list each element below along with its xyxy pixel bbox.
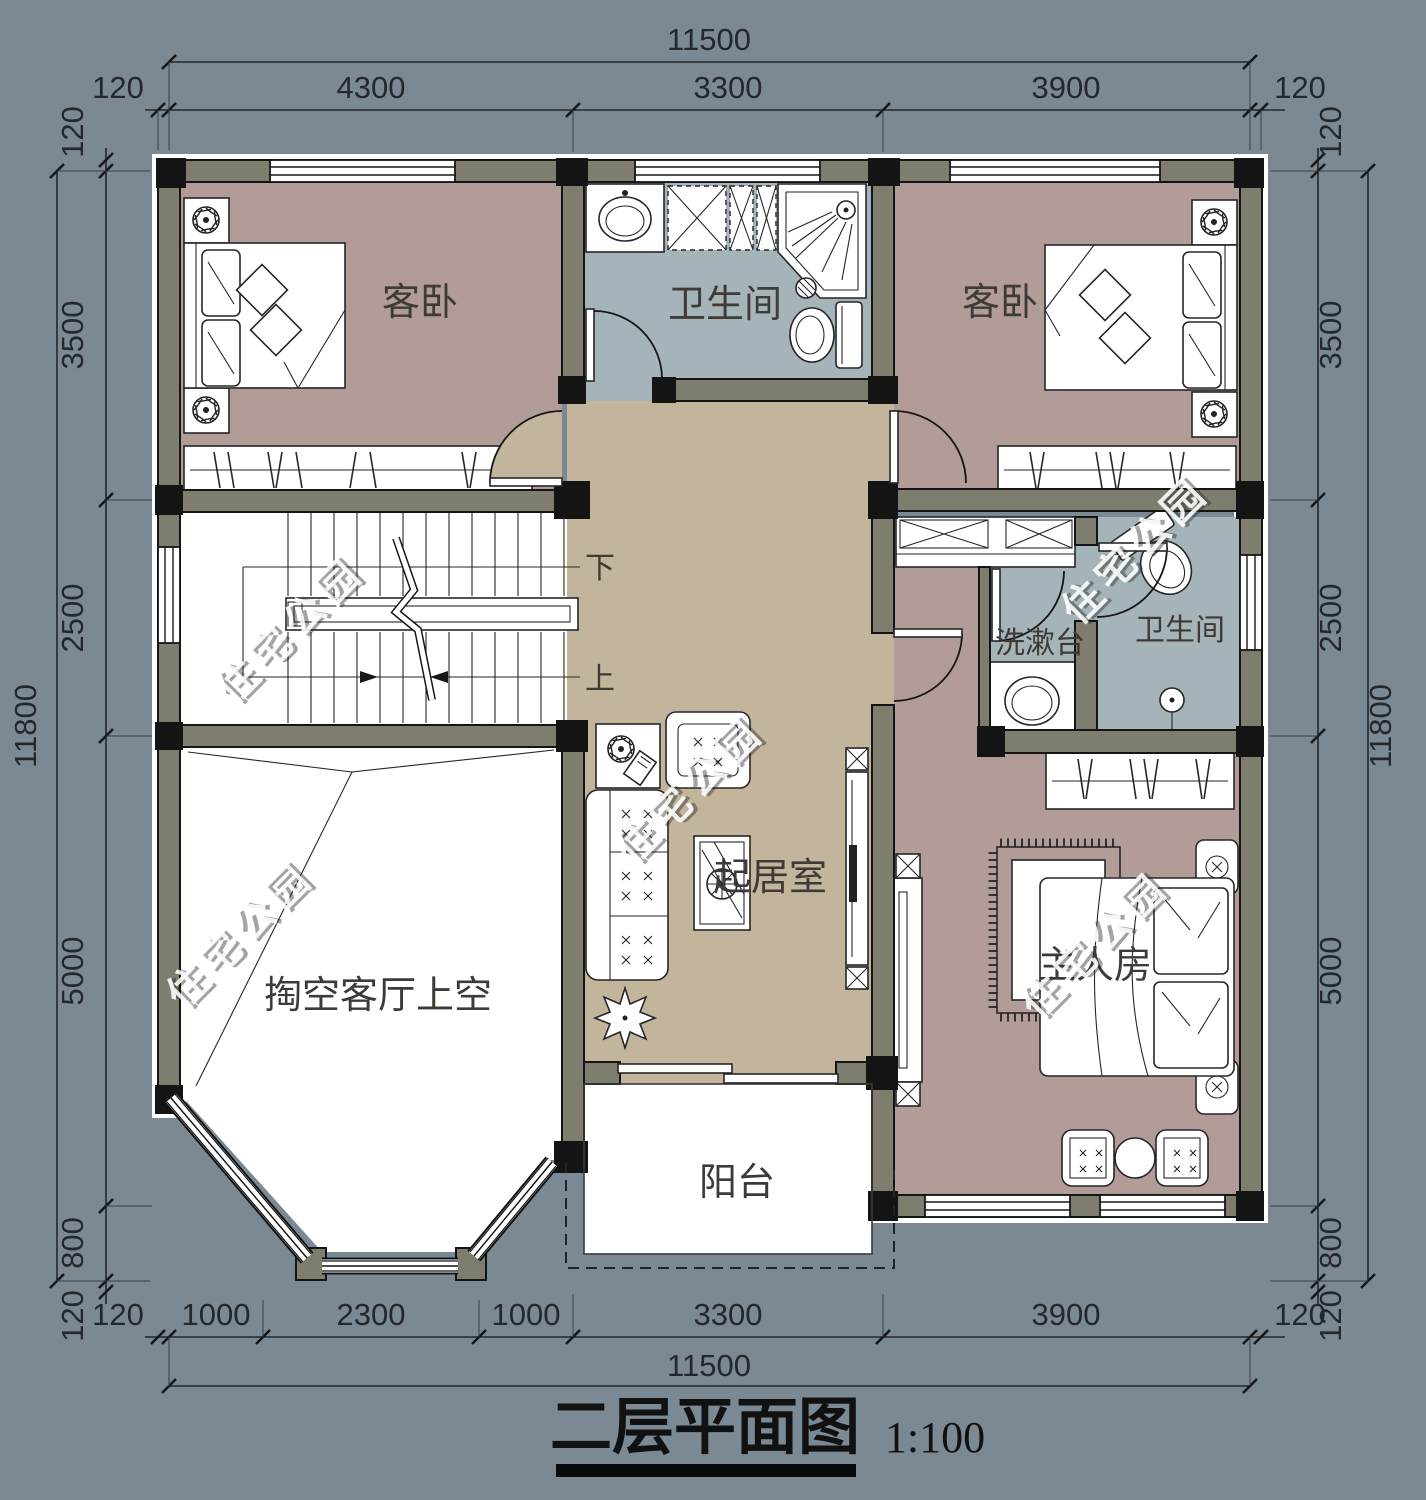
window-top-bath	[635, 160, 820, 182]
wardrobe-guest-left	[184, 446, 532, 494]
svg-text:4300: 4300	[337, 70, 406, 105]
label-balcony: 阳台	[699, 1162, 775, 1204]
label-guest-bedroom-left: 客卧	[382, 282, 458, 324]
svg-text:2500: 2500	[55, 584, 90, 653]
svg-text:1000: 1000	[492, 1297, 561, 1332]
title-block: 二层平面图 1:100	[550, 1394, 985, 1477]
svg-text:3900: 3900	[1032, 70, 1101, 105]
label-bathroom-master: 卫生间	[1135, 614, 1225, 647]
svg-text:120: 120	[55, 106, 90, 158]
dim-left-overall: 11800	[8, 684, 43, 768]
window-master-bottom-2	[1100, 1195, 1225, 1217]
floor-plan-canvas: 下 上	[0, 0, 1426, 1500]
svg-text:5000: 5000	[1313, 937, 1348, 1006]
dim-top-overall: 11500	[667, 22, 751, 57]
svg-text:120: 120	[1313, 1290, 1348, 1342]
label-guest-bedroom-right: 客卧	[962, 282, 1038, 324]
dim-right-overall: 11800	[1363, 684, 1398, 768]
svg-text:1000: 1000	[182, 1297, 251, 1332]
svg-text:120: 120	[92, 1297, 144, 1332]
svg-text:3300: 3300	[694, 1297, 763, 1332]
stairs-down-label: 下	[585, 552, 615, 585]
window-master-bottom-1	[925, 1195, 1070, 1217]
stairs-up-label: 上	[585, 663, 615, 696]
svg-text:120: 120	[1274, 70, 1326, 105]
dim-bottom-overall: 11500	[667, 1348, 751, 1383]
window-top-left	[270, 160, 455, 182]
svg-text:120: 120	[55, 1290, 90, 1342]
svg-text:800: 800	[55, 1217, 90, 1269]
dresser	[894, 878, 922, 1082]
floor-plan-page: 下 上	[0, 0, 1426, 1500]
svg-text:3500: 3500	[1313, 301, 1348, 370]
label-living-room: 起居室	[713, 857, 827, 899]
window-top-right	[950, 160, 1160, 182]
label-washstand: 洗漱台	[995, 627, 1085, 660]
round-table	[1115, 1138, 1155, 1178]
window-stairs	[158, 547, 180, 643]
svg-text:3300: 3300	[694, 70, 763, 105]
svg-text:120: 120	[92, 70, 144, 105]
svg-text:120: 120	[1313, 106, 1348, 158]
svg-text:3500: 3500	[55, 301, 90, 370]
svg-text:3900: 3900	[1032, 1297, 1101, 1332]
label-bathroom-top: 卫生间	[668, 284, 782, 326]
drawing-title: 二层平面图	[550, 1394, 860, 1462]
svg-text:2300: 2300	[337, 1297, 406, 1332]
drawing-scale: 1:100	[885, 1413, 985, 1462]
svg-text:5000: 5000	[55, 937, 90, 1006]
title-underline	[556, 1464, 856, 1477]
label-void: 掏空客厅上空	[264, 975, 492, 1017]
window-master-bath	[1240, 555, 1262, 650]
svg-text:800: 800	[1313, 1217, 1348, 1269]
svg-text:2500: 2500	[1313, 584, 1348, 653]
